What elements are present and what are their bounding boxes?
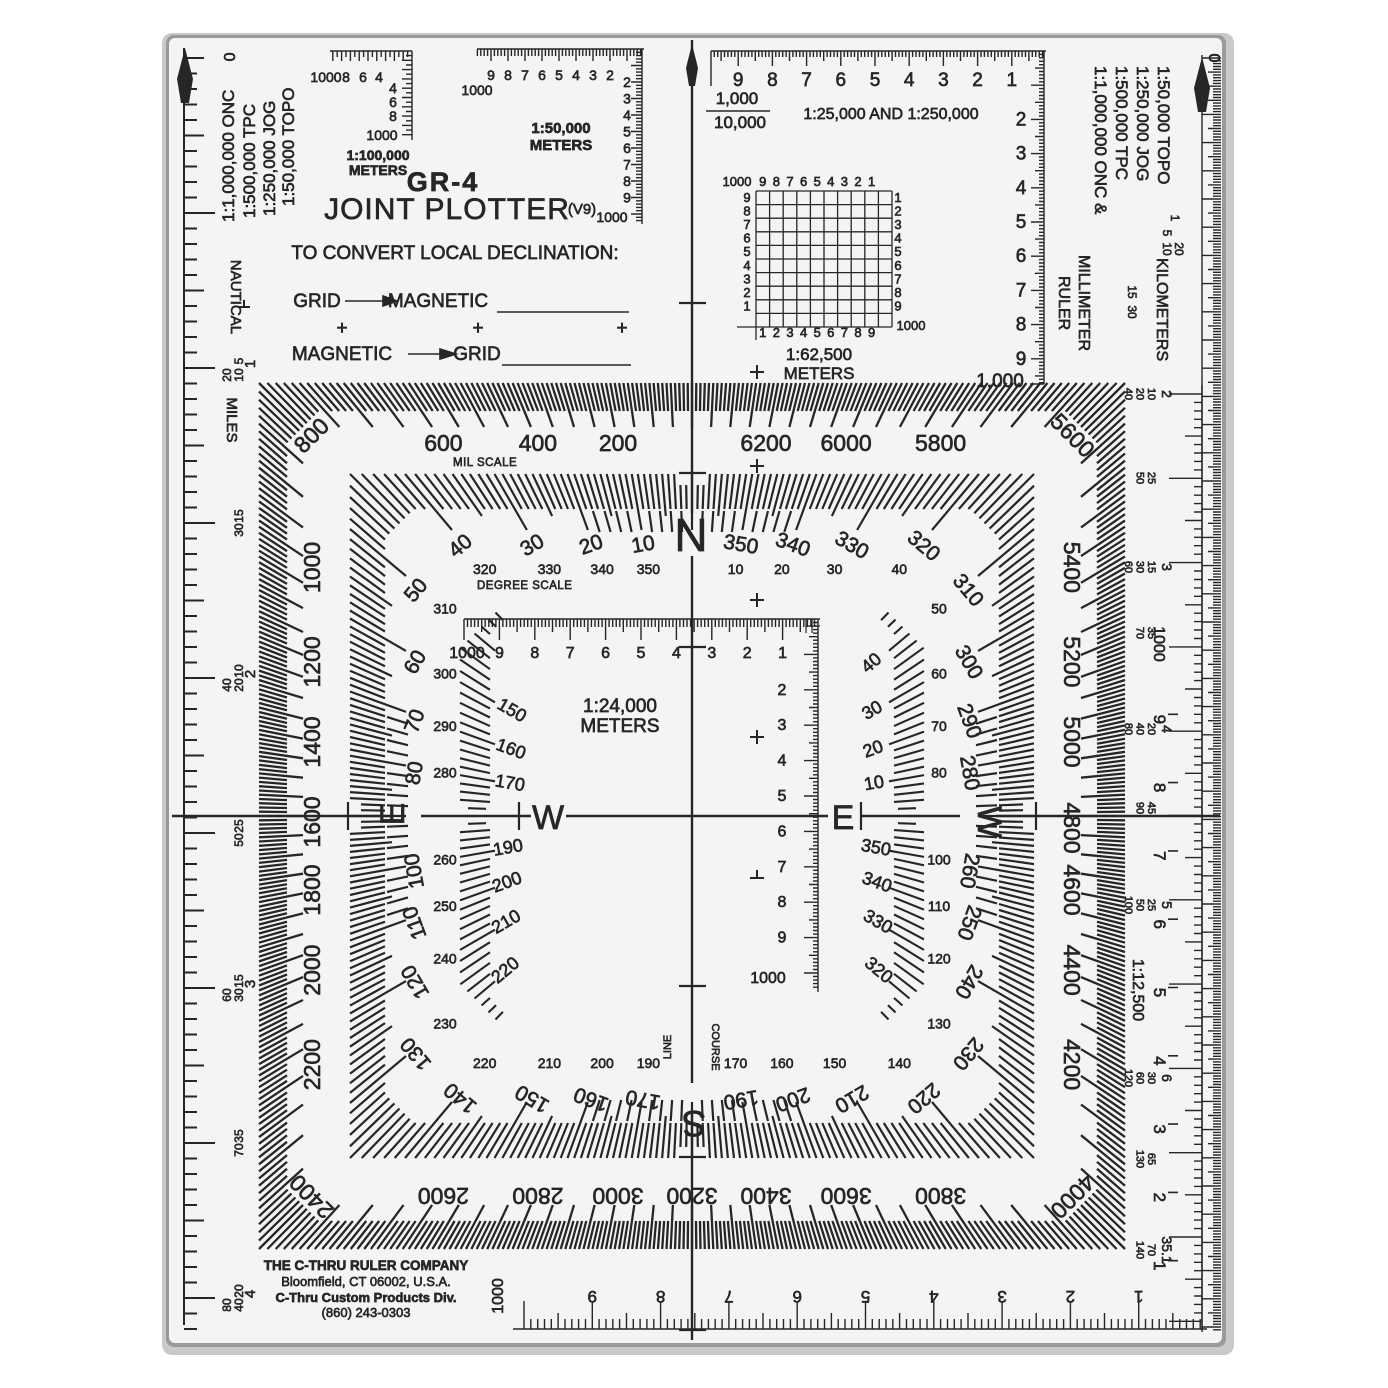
svg-text:30: 30: [1134, 561, 1146, 573]
svg-text:2: 2: [773, 325, 780, 340]
svg-text:(V9): (V9): [568, 201, 596, 218]
svg-text:1000: 1000: [490, 1278, 507, 1314]
svg-text:7: 7: [1150, 851, 1169, 860]
svg-text:300: 300: [433, 665, 457, 681]
svg-text:3: 3: [786, 325, 793, 340]
svg-text:TO CONVERT LOCAL DECLINATIO: TO CONVERT LOCAL DECLINATION:: [291, 243, 618, 264]
svg-text:210: 210: [538, 1055, 562, 1071]
svg-text:2200: 2200: [299, 1039, 325, 1090]
svg-text:4: 4: [672, 645, 681, 662]
svg-text:S: S: [682, 1103, 706, 1144]
svg-text:20: 20: [1145, 723, 1157, 735]
svg-text:1400: 1400: [299, 716, 325, 767]
svg-text:1: 1: [778, 645, 787, 662]
svg-text:25: 25: [232, 819, 246, 833]
svg-text:2: 2: [1016, 109, 1027, 130]
svg-text:100: 100: [1122, 896, 1134, 914]
svg-text:W: W: [970, 806, 1008, 838]
svg-text:3: 3: [841, 174, 848, 189]
svg-text:1:1,000,000 ONC &: 1:1,000,000 ONC &: [1091, 66, 1110, 215]
svg-text:50: 50: [1134, 899, 1146, 911]
svg-text:2: 2: [1066, 1287, 1075, 1306]
svg-text:80: 80: [401, 760, 428, 787]
svg-text:40: 40: [232, 1298, 246, 1312]
svg-text:90: 90: [1134, 802, 1146, 814]
svg-text:4800: 4800: [1059, 802, 1085, 853]
svg-text:+: +: [336, 318, 347, 339]
svg-text:600: 600: [424, 430, 462, 456]
svg-text:9: 9: [743, 190, 750, 205]
svg-text:W: W: [532, 799, 564, 837]
svg-text:5: 5: [1159, 901, 1175, 909]
svg-text:50: 50: [931, 601, 947, 617]
svg-text:400: 400: [519, 430, 557, 456]
svg-text:7: 7: [841, 325, 848, 340]
svg-text:4200: 4200: [1059, 1039, 1085, 1090]
svg-text:7: 7: [743, 217, 750, 232]
svg-text:8: 8: [767, 70, 778, 91]
svg-text:1:250,000 JOG: 1:250,000 JOG: [1133, 66, 1152, 181]
svg-text:4: 4: [375, 69, 383, 85]
svg-text:7: 7: [801, 70, 812, 91]
svg-text:1000: 1000: [723, 174, 752, 189]
svg-text:7: 7: [786, 174, 793, 189]
svg-text:200: 200: [590, 1055, 614, 1071]
svg-text:MAGNETIC: MAGNETIC: [292, 344, 392, 365]
svg-text:1: 1: [868, 174, 875, 189]
svg-text:6: 6: [1159, 1074, 1175, 1082]
svg-text:30: 30: [232, 523, 246, 537]
svg-text:NAUTICAL: NAUTICAL: [227, 260, 244, 334]
svg-text:200: 200: [599, 430, 637, 456]
svg-text:4: 4: [800, 325, 807, 340]
svg-text:35: 35: [232, 1129, 246, 1143]
svg-text:1000: 1000: [449, 645, 485, 662]
svg-text:70: 70: [232, 1143, 246, 1157]
svg-text:220: 220: [473, 1055, 497, 1071]
svg-text:1:25,000 AND 1:250,000: 1:25,000 AND 1:250,000: [803, 106, 978, 123]
svg-text:170: 170: [724, 1055, 748, 1071]
svg-text:1:100,000: 1:100,000: [346, 147, 409, 163]
svg-text:2: 2: [623, 74, 631, 90]
svg-text:5: 5: [232, 357, 246, 364]
svg-text:COURSE: COURSE: [709, 1023, 721, 1070]
svg-text:7: 7: [566, 645, 575, 662]
svg-text:6200: 6200: [740, 430, 791, 456]
svg-text:1,000: 1,000: [976, 371, 1024, 392]
svg-text:Bloomfield, CT 06002, U.S.A.: Bloomfield, CT 06002, U.S.A.: [281, 1274, 451, 1289]
svg-text:2: 2: [972, 70, 983, 91]
svg-text:350: 350: [637, 561, 661, 577]
svg-text:4: 4: [827, 174, 834, 189]
svg-text:METERS: METERS: [784, 364, 855, 383]
svg-text:3: 3: [743, 271, 750, 286]
svg-text:1000: 1000: [897, 318, 926, 333]
svg-text:60: 60: [931, 665, 947, 681]
svg-text:20: 20: [232, 678, 246, 692]
svg-text:25: 25: [1145, 472, 1157, 484]
svg-text:2800: 2800: [512, 1183, 563, 1209]
svg-text:7: 7: [521, 67, 529, 83]
svg-text:6: 6: [836, 70, 847, 91]
svg-text:320: 320: [473, 561, 497, 577]
svg-text:8: 8: [656, 1287, 665, 1306]
svg-text:(860) 243-0303: (860) 243-0303: [322, 1305, 411, 1320]
svg-text:20: 20: [232, 1284, 246, 1298]
svg-text:65: 65: [1145, 1153, 1157, 1165]
svg-text:60: 60: [1134, 1072, 1146, 1084]
svg-text:RULER: RULER: [1055, 276, 1072, 330]
svg-text:2000: 2000: [299, 945, 325, 996]
svg-text:3: 3: [1016, 144, 1027, 165]
svg-text:40: 40: [1122, 388, 1134, 400]
svg-text:70: 70: [1134, 627, 1146, 639]
svg-text:GRID: GRID: [453, 344, 501, 365]
svg-text:2: 2: [1150, 1193, 1169, 1202]
svg-text:0: 0: [1205, 54, 1222, 63]
svg-text:4: 4: [1159, 725, 1175, 733]
svg-text:10: 10: [232, 664, 246, 678]
svg-text:7: 7: [778, 859, 787, 876]
svg-text:4: 4: [743, 258, 750, 273]
svg-text:7: 7: [623, 157, 631, 173]
svg-text:3: 3: [778, 717, 787, 734]
svg-text:9: 9: [894, 299, 901, 314]
svg-text:5: 5: [555, 67, 563, 83]
svg-text:3600: 3600: [821, 1183, 872, 1209]
svg-text:8: 8: [623, 173, 631, 189]
svg-text:6: 6: [743, 231, 750, 246]
svg-text:240: 240: [433, 951, 457, 967]
svg-text:4600: 4600: [1059, 864, 1085, 915]
svg-text:5: 5: [1016, 212, 1027, 233]
svg-text:8: 8: [1016, 315, 1027, 336]
svg-text:20: 20: [774, 561, 790, 577]
svg-text:40: 40: [1134, 723, 1146, 735]
svg-text:5: 5: [1150, 988, 1169, 997]
svg-text:N: N: [674, 509, 707, 561]
svg-text:9: 9: [1016, 349, 1027, 370]
svg-text:+: +: [616, 318, 627, 339]
svg-text:100: 100: [927, 852, 951, 868]
svg-text:4: 4: [929, 1287, 938, 1306]
svg-text:8: 8: [854, 325, 861, 340]
svg-text:9: 9: [868, 325, 875, 340]
svg-text:6: 6: [538, 67, 546, 83]
svg-text:8: 8: [773, 174, 780, 189]
svg-text:15: 15: [1145, 561, 1157, 573]
svg-text:30: 30: [827, 561, 843, 577]
svg-text:3: 3: [997, 1287, 1006, 1306]
svg-text:25: 25: [1145, 899, 1157, 911]
svg-text:340: 340: [590, 561, 614, 577]
svg-text:8: 8: [743, 203, 750, 218]
svg-text:70: 70: [931, 718, 947, 734]
svg-text:140: 140: [1134, 1241, 1146, 1259]
svg-text:1000: 1000: [299, 542, 325, 593]
svg-text:10: 10: [232, 368, 246, 382]
svg-text:20: 20: [220, 368, 234, 382]
svg-text:6: 6: [800, 174, 807, 189]
svg-text:1:24,000: 1:24,000: [583, 696, 657, 717]
svg-text:MIL SCALE: MIL SCALE: [453, 457, 517, 469]
svg-text:1000: 1000: [750, 970, 786, 987]
svg-text:60: 60: [1122, 561, 1134, 573]
svg-text:3000: 3000: [592, 1183, 643, 1209]
svg-text:8: 8: [342, 69, 350, 85]
svg-text:10,000: 10,000: [714, 113, 766, 132]
svg-text:9: 9: [778, 930, 787, 947]
svg-text:3: 3: [1159, 563, 1175, 571]
svg-text:3: 3: [1150, 1124, 1169, 1133]
svg-text:6: 6: [827, 325, 834, 340]
svg-text:MILES: MILES: [223, 397, 240, 442]
svg-text:4: 4: [572, 67, 580, 83]
svg-text:9: 9: [759, 174, 766, 189]
svg-text:1:12,500: 1:12,500: [1129, 959, 1146, 1021]
svg-text:MILLIMETER: MILLIMETER: [1075, 255, 1092, 351]
svg-text:10: 10: [630, 531, 657, 558]
svg-text:15: 15: [232, 509, 246, 523]
svg-text:120: 120: [927, 951, 951, 967]
svg-text:10: 10: [1145, 388, 1157, 400]
svg-text:10: 10: [862, 771, 885, 794]
svg-text:5: 5: [637, 645, 646, 662]
svg-text:5400: 5400: [1059, 542, 1085, 593]
svg-text:3800: 3800: [915, 1183, 966, 1209]
svg-text:1:1,000,000 ONC: 1:1,000,000 ONC: [219, 90, 238, 222]
svg-text:130: 130: [1134, 1150, 1146, 1168]
svg-text:80: 80: [220, 1298, 234, 1312]
svg-text:45: 45: [1145, 802, 1157, 814]
svg-text:METERS: METERS: [349, 162, 407, 178]
svg-text:1600: 1600: [299, 796, 325, 847]
svg-text:2: 2: [743, 285, 750, 300]
svg-text:2600: 2600: [418, 1183, 469, 1209]
svg-text:1:50,000: 1:50,000: [531, 120, 590, 137]
svg-text:8: 8: [389, 108, 397, 124]
svg-text:METERS: METERS: [580, 716, 659, 737]
svg-text:E: E: [832, 799, 855, 837]
svg-text:THE C-THRU RULER COMPANY: THE C-THRU RULER COMPANY: [264, 1258, 469, 1273]
svg-text:3: 3: [938, 70, 949, 91]
svg-text:9: 9: [588, 1287, 597, 1306]
svg-text:1: 1: [743, 299, 750, 314]
svg-text:60: 60: [220, 988, 234, 1002]
svg-text:10: 10: [728, 561, 744, 577]
svg-text:120: 120: [1122, 1069, 1134, 1087]
svg-text:3: 3: [589, 67, 597, 83]
svg-text:2: 2: [743, 645, 752, 662]
svg-text:6: 6: [359, 69, 367, 85]
svg-text:310: 310: [433, 601, 457, 617]
svg-text:280: 280: [433, 764, 457, 780]
svg-text:1000: 1000: [310, 69, 341, 85]
svg-text:8: 8: [504, 67, 512, 83]
svg-text:2: 2: [778, 682, 787, 699]
svg-text:5: 5: [623, 124, 631, 140]
svg-text:1:62,500: 1:62,500: [786, 345, 852, 364]
svg-text:9: 9: [733, 70, 744, 91]
svg-text:1: 1: [1007, 70, 1018, 91]
svg-text:190: 190: [637, 1055, 661, 1071]
svg-text:40: 40: [892, 561, 908, 577]
svg-text:4: 4: [623, 107, 631, 123]
svg-text:8: 8: [1150, 783, 1169, 792]
svg-text:1:50,000 TOPO: 1:50,000 TOPO: [279, 88, 298, 206]
svg-text:3: 3: [707, 645, 716, 662]
svg-text:15: 15: [232, 974, 246, 988]
svg-text:5: 5: [778, 788, 787, 805]
svg-text:4400: 4400: [1059, 945, 1085, 996]
svg-text:6000: 6000: [821, 430, 872, 456]
svg-text:5800: 5800: [915, 430, 966, 456]
svg-text:50: 50: [1134, 472, 1146, 484]
svg-text:4: 4: [1150, 1056, 1169, 1065]
svg-text:5: 5: [814, 174, 821, 189]
svg-text:140: 140: [888, 1055, 912, 1071]
svg-text:6: 6: [792, 1287, 801, 1306]
svg-text:4: 4: [778, 753, 787, 770]
svg-text:LINE: LINE: [662, 1035, 674, 1059]
svg-text:E: E: [374, 803, 412, 826]
svg-text:1,000: 1,000: [716, 89, 759, 108]
svg-text:20: 20: [1172, 242, 1186, 256]
svg-text:1000: 1000: [461, 82, 492, 98]
svg-text:6: 6: [778, 823, 787, 840]
svg-text:1000: 1000: [366, 127, 397, 143]
svg-text:5: 5: [1160, 230, 1174, 237]
svg-text:6: 6: [1016, 246, 1027, 267]
svg-text:1: 1: [1168, 215, 1182, 222]
svg-text:4: 4: [1016, 178, 1027, 199]
svg-text:260: 260: [433, 852, 457, 868]
svg-text:5: 5: [861, 1287, 870, 1306]
svg-text:1: 1: [759, 325, 766, 340]
svg-text:290: 290: [433, 718, 457, 734]
svg-text:1: 1: [1134, 1287, 1143, 1306]
svg-text:250: 250: [433, 898, 457, 914]
svg-text:1800: 1800: [299, 864, 325, 915]
svg-text:30: 30: [1145, 1072, 1157, 1084]
svg-text:7: 7: [1016, 280, 1027, 301]
svg-text:METERS: METERS: [530, 137, 593, 154]
svg-text:15: 15: [1125, 285, 1139, 299]
svg-text:3: 3: [623, 91, 631, 107]
svg-text:KILOMETERS: KILOMETERS: [1153, 258, 1170, 361]
svg-text:MAGNETIC: MAGNETIC: [388, 291, 488, 312]
svg-text:110: 110: [928, 898, 951, 914]
svg-text:150: 150: [823, 1055, 847, 1071]
svg-text:+: +: [472, 318, 483, 339]
svg-text:1200: 1200: [299, 636, 325, 687]
svg-text:5200: 5200: [1059, 636, 1085, 687]
svg-text:9: 9: [495, 645, 504, 662]
svg-text:8: 8: [778, 894, 787, 911]
svg-text:35: 35: [1145, 627, 1157, 639]
svg-text:30: 30: [1125, 305, 1139, 319]
svg-text:4: 4: [904, 70, 915, 91]
svg-text:50: 50: [232, 833, 246, 847]
svg-text:80: 80: [931, 764, 947, 780]
svg-text:DEGREE SCALE: DEGREE SCALE: [477, 580, 572, 592]
svg-text:GRID: GRID: [293, 291, 341, 312]
svg-text:9: 9: [623, 190, 631, 206]
svg-text:1000: 1000: [596, 209, 627, 225]
svg-text:6: 6: [1150, 919, 1169, 928]
svg-text:230: 230: [433, 1015, 457, 1031]
svg-text:6: 6: [601, 645, 610, 662]
svg-text:6: 6: [623, 140, 631, 156]
svg-text:1:50,000 TOPO: 1:50,000 TOPO: [1154, 66, 1173, 184]
svg-text:70: 70: [1145, 1244, 1157, 1256]
svg-text:5: 5: [743, 244, 750, 259]
svg-text:5: 5: [870, 70, 881, 91]
svg-text:160: 160: [770, 1055, 794, 1071]
svg-text:130: 130: [927, 1015, 951, 1031]
svg-text:7: 7: [724, 1287, 733, 1306]
svg-text:JOINT PLOTTER: JOINT PLOTTER: [324, 193, 570, 226]
svg-text:330: 330: [538, 561, 562, 577]
svg-text:8: 8: [530, 645, 539, 662]
svg-text:3400: 3400: [740, 1183, 791, 1209]
svg-text:35.1: 35.1: [1159, 1236, 1175, 1263]
svg-text:5: 5: [814, 325, 821, 340]
svg-text:40: 40: [220, 678, 234, 692]
svg-text:80: 80: [1122, 723, 1134, 735]
svg-text:10: 10: [1160, 242, 1174, 256]
svg-text:1:500,000 TPC: 1:500,000 TPC: [240, 104, 259, 218]
svg-text:5000: 5000: [1059, 716, 1085, 767]
svg-text:20: 20: [1134, 388, 1146, 400]
svg-text:2: 2: [854, 174, 861, 189]
svg-text:30: 30: [232, 988, 246, 1002]
svg-text:1:250,000 JOG: 1:250,000 JOG: [260, 101, 279, 216]
svg-text:0: 0: [220, 53, 237, 62]
svg-text:2: 2: [1159, 390, 1175, 398]
svg-text:2: 2: [606, 67, 614, 83]
svg-text:9: 9: [487, 67, 495, 83]
svg-text:C-Thru Custom Products Div.: C-Thru Custom Products Div.: [275, 1290, 456, 1305]
svg-text:1:500,000 TPC: 1:500,000 TPC: [1112, 66, 1131, 180]
